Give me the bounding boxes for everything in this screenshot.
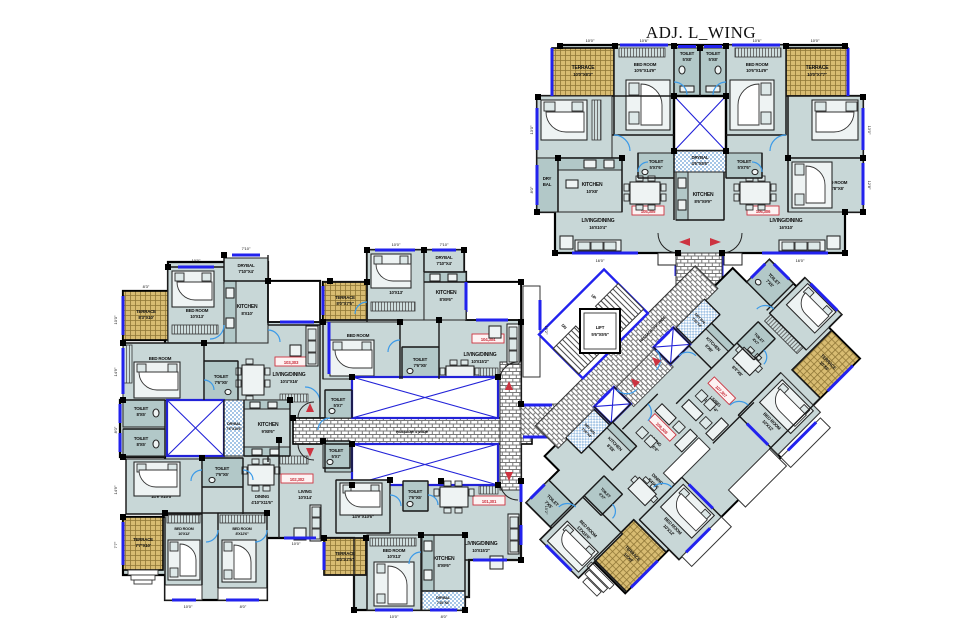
svg-text:10'X15'2": 10'X15'2" (471, 359, 489, 364)
svg-text:TOILET: TOILET (134, 436, 149, 441)
svg-text:7'6"X5': 7'6"X5' (413, 363, 426, 368)
svg-text:BAL: BAL (543, 182, 552, 187)
svg-text:9'X8'6": 9'X8'6" (261, 429, 274, 434)
svg-text:PASSAGE 4' WIDE: PASSAGE 4' WIDE (396, 429, 429, 434)
svg-text:7'7"X10': 7'7"X10' (135, 543, 150, 548)
svg-text:8'3": 8'3" (143, 284, 150, 289)
svg-text:10'6"X14'9": 10'6"X14'9" (746, 68, 768, 73)
svg-text:DINING: DINING (255, 494, 270, 499)
svg-text:BED ROOM: BED ROOM (347, 333, 370, 338)
svg-text:10'6": 10'6" (753, 38, 762, 43)
svg-text:5'X8': 5'X8' (709, 57, 718, 62)
svg-text:DRYBAL: DRYBAL (692, 155, 709, 160)
svg-text:TOILET: TOILET (680, 51, 695, 56)
svg-text:7'6"X5': 7'6"X5' (408, 495, 421, 500)
svg-text:8'X5': 8'X5' (137, 442, 146, 447)
svg-text:10'X15'2": 10'X15'2" (472, 548, 490, 553)
svg-text:10'0"X8'3": 10'0"X8'3" (573, 72, 593, 77)
svg-text:ADJ. L_WING: ADJ. L_WING (646, 23, 756, 42)
svg-text:TERRACE: TERRACE (806, 65, 830, 71)
svg-text:10'X13': 10'X13' (387, 554, 401, 559)
svg-text:7'6"X5': 7'6"X5' (215, 472, 228, 477)
svg-text:10'0"X7'7": 10'0"X7'7" (807, 72, 827, 77)
svg-text:8'X5': 8'X5' (137, 412, 146, 417)
svg-text:LIFT: LIFT (596, 325, 605, 330)
svg-text:10'X12': 10'X12' (178, 532, 190, 536)
svg-text:TOILET: TOILET (649, 159, 664, 164)
svg-text:10'X13': 10'X13' (389, 290, 403, 295)
svg-text:10'0": 10'0" (390, 614, 399, 619)
svg-text:DRYBAL: DRYBAL (436, 255, 453, 260)
svg-text:KITCHEN: KITCHEN (693, 192, 714, 198)
svg-text:8'X9'6": 8'X9'6" (439, 297, 452, 302)
svg-text:10'0": 10'0" (586, 38, 595, 43)
svg-text:LIVING/DINING: LIVING/DINING (464, 352, 497, 358)
svg-text:14'9": 14'9" (113, 367, 118, 376)
svg-text:10'0": 10'0" (292, 541, 301, 546)
svg-text:7'7": 7'7" (113, 541, 118, 548)
svg-text:10'0": 10'0" (392, 242, 401, 247)
svg-text:8'0": 8'0" (441, 614, 448, 619)
svg-text:7'10"X4': 7'10"X4' (437, 601, 450, 605)
svg-text:13'0": 13'0" (529, 125, 534, 134)
svg-text:4'6"X5'6": 4'6"X5'6" (691, 161, 708, 166)
svg-text:101,301: 101,301 (482, 499, 497, 504)
svg-text:DRYBAL: DRYBAL (436, 596, 451, 600)
svg-text:LIVING/DINING: LIVING/DINING (770, 218, 803, 224)
svg-text:10'X14': 10'X14' (298, 495, 312, 500)
svg-text:5'X7'6": 5'X7'6" (649, 165, 662, 170)
svg-text:10'4"X16': 10'4"X16' (280, 379, 298, 384)
svg-text:8'X9'6": 8'X9'6" (437, 563, 450, 568)
svg-text:16'0": 16'0" (796, 258, 805, 263)
svg-text:7'10"X4': 7'10"X4' (238, 269, 253, 274)
svg-text:8'0": 8'0" (240, 604, 247, 609)
svg-text:5'X7': 5'X7' (332, 454, 341, 459)
svg-text:TERRACE: TERRACE (133, 537, 153, 542)
svg-text:LIVING/DINING: LIVING/DINING (465, 541, 498, 547)
svg-text:102,302: 102,302 (290, 477, 305, 482)
svg-text:7'10"X4': 7'10"X4' (436, 261, 451, 266)
svg-text:5'X7': 5'X7' (334, 403, 343, 408)
svg-text:10'0": 10'0" (811, 38, 820, 43)
svg-text:BED ROOM: BED ROOM (174, 527, 193, 531)
svg-text:103,303: 103,303 (284, 360, 299, 365)
svg-text:BED ROOM: BED ROOM (149, 356, 172, 361)
svg-text:14'9": 14'9" (113, 485, 118, 494)
svg-text:10'6"X14'9": 10'6"X14'9" (634, 68, 656, 73)
svg-text:DRYBAL: DRYBAL (238, 263, 255, 268)
svg-text:TOILET: TOILET (413, 357, 428, 362)
svg-text:12'8": 12'8" (867, 181, 872, 190)
svg-text:16'X10'4": 16'X10'4" (589, 225, 607, 230)
svg-text:BED ROOM: BED ROOM (186, 308, 209, 313)
svg-text:TOILET: TOILET (134, 406, 149, 411)
svg-text:7'6"X5': 7'6"X5' (214, 380, 227, 385)
svg-text:15'2": 15'2" (544, 506, 549, 515)
svg-text:KITCHEN: KITCHEN (237, 304, 258, 310)
svg-text:13'0": 13'0" (867, 126, 872, 135)
svg-text:8'0"X7'5": 8'0"X7'5" (336, 557, 353, 562)
svg-text:8'0"X7'5": 8'0"X7'5" (336, 301, 353, 306)
svg-text:8'3"X10': 8'3"X10' (138, 315, 153, 320)
svg-text:TOILET: TOILET (408, 489, 423, 494)
svg-text:BED ROOM: BED ROOM (634, 62, 657, 67)
svg-text:4'10"X11'6": 4'10"X11'6" (251, 500, 273, 505)
svg-text:TOILET: TOILET (331, 397, 346, 402)
svg-text:8'0": 8'0" (529, 186, 534, 193)
svg-text:16'0": 16'0" (596, 258, 605, 263)
svg-text:10'0": 10'0" (184, 604, 193, 609)
svg-text:8'X10': 8'X10' (241, 311, 252, 316)
svg-text:KITCHEN: KITCHEN (434, 556, 455, 562)
svg-text:BED ROOM: BED ROOM (232, 527, 251, 531)
svg-text:5'X8': 5'X8' (683, 57, 692, 62)
svg-text:KITCHEN: KITCHEN (258, 422, 279, 428)
svg-text:15'2": 15'2" (544, 326, 549, 335)
svg-text:KITCHEN: KITCHEN (436, 290, 457, 296)
svg-text:LIVING/DINING: LIVING/DINING (582, 218, 615, 224)
svg-text:TOILET: TOILET (706, 51, 721, 56)
svg-text:DRY: DRY (543, 176, 552, 181)
svg-text:16'X10': 16'X10' (779, 225, 793, 230)
svg-text:TOILET: TOILET (329, 448, 344, 453)
svg-text:7'10": 7'10" (242, 246, 251, 251)
svg-text:DRYBAL: DRYBAL (227, 422, 242, 426)
svg-text:TOILET: TOILET (214, 374, 229, 379)
svg-text:10'0": 10'0" (113, 315, 118, 324)
svg-text:10'X8': 10'X8' (586, 189, 597, 194)
svg-text:TOILET: TOILET (737, 159, 752, 164)
svg-text:10'X13': 10'X13' (190, 314, 204, 319)
svg-text:TERRACE: TERRACE (335, 551, 355, 556)
svg-text:TERRACE: TERRACE (572, 65, 596, 71)
svg-text:5'6"X5'6": 5'6"X5'6" (591, 332, 608, 337)
svg-text:5'X7'6": 5'X7'6" (737, 165, 750, 170)
svg-text:TOILET: TOILET (215, 466, 230, 471)
svg-text:10'0": 10'0" (192, 258, 201, 263)
svg-text:8'0": 8'0" (113, 426, 118, 433)
svg-text:LIVING/DINING: LIVING/DINING (273, 372, 306, 378)
svg-text:10'6": 10'6" (640, 38, 649, 43)
svg-text:BED ROOM: BED ROOM (383, 548, 406, 553)
svg-text:8'X12'6": 8'X12'6" (236, 532, 249, 536)
svg-text:TERRACE: TERRACE (335, 295, 355, 300)
svg-text:8'6"X9'9": 8'6"X9'9" (694, 199, 711, 204)
svg-text:LIVING: LIVING (298, 489, 312, 494)
svg-text:7'6"X10'6": 7'6"X10'6" (226, 427, 242, 431)
svg-text:KITCHEN: KITCHEN (582, 182, 603, 188)
svg-text:TERRACE: TERRACE (136, 309, 156, 314)
svg-text:BED ROOM: BED ROOM (746, 62, 769, 67)
svg-text:7'10": 7'10" (440, 242, 449, 247)
